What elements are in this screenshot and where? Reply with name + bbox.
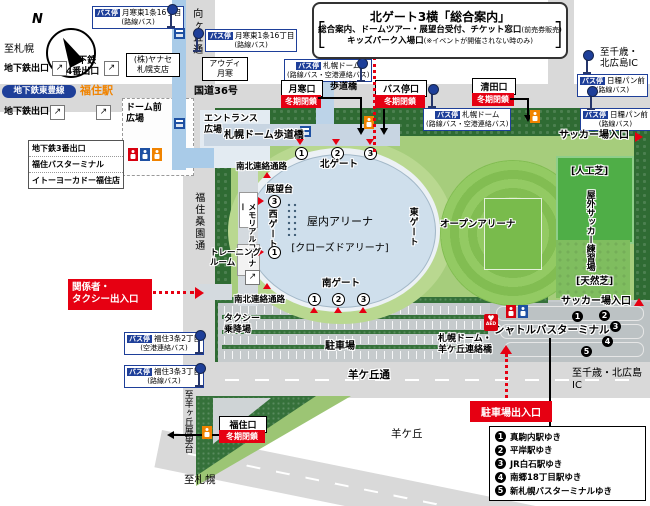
indoor-arena-label: 屋内アリーナ [クローズドアリーナ] [255, 203, 425, 255]
station-structure-icon-2 [174, 118, 185, 129]
restroom-female-icon-south [506, 305, 516, 318]
hitsujigaoka-dori-label: 羊ケ丘通 [348, 369, 390, 381]
south-gate-num-1: 1 [308, 293, 321, 306]
to-chitose-se-label: 至千歳・北広島IC [572, 368, 650, 392]
legend-item: 5新札幌バスターミナルゆき [495, 484, 645, 498]
bus-stop-badge: バス停 [583, 111, 608, 119]
restroom-female-icon-plaza [128, 148, 138, 161]
bus-stop-badge: バス停 [95, 9, 120, 17]
hodokyo-label: 歩道橋 [330, 82, 357, 93]
south-gate-label: 南ゲート [322, 278, 360, 289]
callout-exit3: 地下鉄3番出口 [29, 141, 123, 156]
dome-front-plaza-label: ドーム前 広場 [126, 103, 162, 124]
bus-pole-icon-dome-w [360, 66, 362, 81]
bus-stop-fukuzumi-3jo3: バス停福住3条3丁目 (路線バス) [124, 365, 204, 388]
legend-item: 4南郷18丁目駅ゆき [495, 471, 645, 485]
shuttle-bus-legend: 1真駒内駅ゆき 2平岸駅ゆき 3JR白石駅ゆき 4南郷18丁目駅ゆき 5新札幌バ… [489, 426, 646, 501]
passage-south-label: 南北連絡通路 [234, 295, 285, 305]
shuttle-lane-3 [504, 342, 644, 357]
north-gate-num-1: 1 [295, 147, 308, 160]
callout-itoyokado: イトーヨーカドー福住店 [29, 172, 123, 188]
to-sapporo-nw-label: 至札幌 [4, 44, 34, 56]
escalator-icon-nw [52, 61, 67, 76]
parking-gate-dotted-line [505, 354, 508, 398]
tree-band-east [634, 136, 650, 306]
south-gate-num-3: 3 [357, 293, 370, 306]
staff-taxi-arrow [195, 287, 204, 299]
parking-gate-arrow [500, 345, 512, 354]
legend-item: 3JR白石駅ゆき [495, 457, 645, 471]
audi-building-label: アウディ 月寒 [202, 57, 248, 81]
south-gate-num-2: 2 [332, 293, 345, 306]
bus-stop-badge: バス停 [580, 77, 605, 85]
callout-bus-terminal: 福住バスターミナル [29, 156, 123, 172]
open-arena-label: オープンアリーナ [440, 219, 515, 230]
south-gate-marker-1 [310, 307, 318, 313]
training-room-label: トレーニング ルーム [210, 248, 261, 268]
soccer-entrance-n-marker [635, 132, 643, 142]
bus-stop-nichiryo-s: バス停日糧パン前 (路線バス) [580, 108, 650, 131]
info-title-line2: 総合案内、ドームツアー・展望台受付、チケット窓口(前売券販売) [314, 25, 566, 36]
fukuzumi-gate-arrow [167, 431, 174, 439]
fukuzumi-station-label: 福住駅 [80, 85, 113, 98]
subway-exit4-label: 地下鉄 4番出口 [66, 56, 99, 77]
natural-turf-label: [天然芝] [576, 276, 613, 287]
shuttle-dest-num-1: 1 [572, 311, 583, 322]
bus-pole-icon-nichiryo-s [590, 94, 592, 109]
subway-exit-nw-label: 地下鉄出口 [4, 64, 49, 75]
passage-south-marker [263, 283, 271, 289]
hitsujigaoka-area-label: 羊ケ丘 [391, 428, 423, 440]
kiyota-gate-status: 冬期閉鎖 [472, 93, 514, 106]
outdoor-soccer-label: 屋外サッカー練習場 [584, 190, 595, 271]
bus-pole-icon-fukuzumi-3jo3 [198, 371, 200, 386]
station-walkway-bend [172, 148, 214, 168]
elevator-icon-kiyota [530, 110, 540, 123]
north-gate-label: 北ゲート [320, 159, 358, 170]
to-chitose-ne-label: 至千歳・ 北広島IC [600, 47, 638, 69]
bus-stop-dome-e: バス停札幌ドーム (路線バス・空港連絡バス) [423, 108, 511, 131]
info-title-line3: キッズパーク入場口(※イベントが開催されない時のみ) [314, 36, 566, 47]
bus-stop-badge: バス停 [208, 32, 233, 40]
restroom-male-icon-plaza [140, 148, 150, 161]
title-dotted-line [373, 57, 376, 152]
bus-stop-tsukisamu-e: バス停月寒東1条16丁目 (路線バス) [205, 29, 297, 52]
bus-stop-badge: バス停 [435, 111, 460, 119]
exit3-callout-box: 地下鉄3番出口 福住バスターミナル イトーヨーカドー福住店 [28, 140, 124, 189]
closed-arena-label: [クローズドアリーナ] [291, 243, 388, 254]
legend-num-1: 1 [495, 431, 506, 442]
open-arena-pitch [484, 198, 542, 270]
staff-taxi-dotted-line [146, 291, 194, 294]
soccer-entrance-n-label: サッカー場入口 [559, 130, 629, 142]
bus-pole-icon-tsukisamu-e [196, 36, 198, 51]
bus-stop-badge: バス停 [127, 368, 152, 376]
fukuzumi-soen-dori-label: 福住桑園通 [192, 192, 204, 252]
bus-stop-badge: バス停 [127, 335, 152, 343]
bracket-left: [ [316, 20, 328, 50]
tsukisamu-connector-arrow [357, 128, 365, 135]
renraku-bridge-label: 札幌ドーム・ 羊ケ丘連絡橋 [438, 334, 492, 355]
bus-stop-fukuzumi-3jo2: バス停福住3条2丁目 (空港連絡バス) [124, 332, 204, 355]
busstop-gate-connector [383, 109, 385, 129]
legend-item: 2平岸駅ゆき [495, 444, 645, 458]
staff-taxi-entrance-box: 関係者・ タクシー出入口 [68, 279, 152, 310]
bus-pole-icon-tsukisamu-w [170, 12, 172, 27]
info-title-box: 北ゲート3横「総合案内」 総合案内、ドームツアー・展望台受付、チケット窓口(前売… [312, 2, 568, 59]
bus-stop-badge: バス停 [296, 62, 321, 70]
yanase-building-label: (株)ヤナセ 札幌支店 [126, 53, 180, 77]
east-gate-label: 東ゲート [407, 207, 418, 247]
north-gate-marker-2 [332, 139, 340, 145]
legend-num-2: 2 [495, 445, 506, 456]
shuttle-dest-num-2: 2 [599, 310, 610, 321]
busstop-gate-arrow [380, 128, 388, 135]
passage-north-marker [263, 172, 271, 178]
soccer-entrance-s-label: サッカー場入口 [561, 296, 631, 308]
bracket-right: ] [552, 20, 564, 50]
aed-icon: AED [484, 314, 498, 331]
escalator-icon-sw [50, 105, 65, 120]
subway-exit-sw-label: 地下鉄出口 [4, 107, 49, 118]
shuttle-terminal-label: シャトルバスターミナル [494, 324, 610, 336]
sapporo-dome-access-map: N 至札幌 地下鉄出口 地下鉄 4番出口 (株)ヤナセ 札幌支店 地下鉄東豊線 … [0, 0, 650, 506]
tsukisamu-connector-h [318, 97, 362, 99]
subway-line-badge: 地下鉄東豊線 [2, 85, 76, 98]
soccer-entrance-s-marker [634, 298, 644, 306]
legend-num-5: 5 [495, 485, 506, 496]
fukuzumi-gate-status: 冬期閉鎖 [219, 430, 265, 443]
legend-item: 1真駒内駅ゆき [495, 430, 645, 444]
passage-north-label: 南北連絡通路 [236, 162, 287, 172]
to-sapporo-sw-label: 至札幌 [184, 474, 216, 486]
legend-num-4: 4 [495, 472, 506, 483]
restroom-male-icon-south [518, 305, 528, 318]
shuttle-dest-num-3: 3 [610, 321, 621, 332]
parking-gate-box: 駐車場出入口 [470, 401, 552, 422]
elevator-icon-fukuzumi [202, 426, 212, 439]
kiyota-connector-h [510, 98, 528, 100]
artificial-turf-label: [人工芝] [571, 166, 608, 177]
escalator-icon-corridor [245, 270, 260, 285]
route36-label: 国道36号 [194, 86, 238, 98]
escalator-icon-exit3 [96, 105, 111, 120]
tsukisamu-connector-v [360, 97, 362, 129]
compass-n-label: N [32, 12, 43, 27]
tsukisamu-gate-status: 冬期閉鎖 [281, 95, 321, 108]
escalator-icon-exit4 [104, 61, 119, 76]
kiyota-connector-v [527, 98, 529, 116]
info-title-line1: 北ゲート3横「総合案内」 [314, 8, 566, 25]
south-gate-marker-3 [359, 307, 367, 313]
north-gate-marker-1 [296, 139, 304, 145]
legend-num-3: 3 [495, 458, 506, 469]
shuttle-dest-num-5: 5 [581, 346, 592, 357]
accessible-restroom-icon-plaza [152, 148, 162, 161]
bus-pole-icon-fukuzumi-3jo2 [198, 338, 200, 353]
parking-label: 駐車場 [325, 341, 355, 353]
shuttle-dest-num-4: 4 [602, 336, 613, 347]
bus-pole-icon-dome-e [431, 92, 433, 107]
station-structure-icon-1 [174, 28, 185, 39]
to-observatory-label: 至羊ヶ丘展望台 [182, 390, 193, 453]
observatory-label: 展望台 [266, 185, 293, 196]
fukuzumi-gate-connector [174, 434, 219, 436]
taxi-stand-label: タクシー 乗降場 [224, 314, 260, 335]
south-gate-marker-2 [334, 307, 342, 313]
bus-stop-gate-status: 冬期閉鎖 [375, 95, 425, 108]
bus-pole-icon-nichiryo-n [586, 58, 588, 73]
dome-bridge-label: 札幌ドーム歩道橋 [224, 130, 304, 142]
